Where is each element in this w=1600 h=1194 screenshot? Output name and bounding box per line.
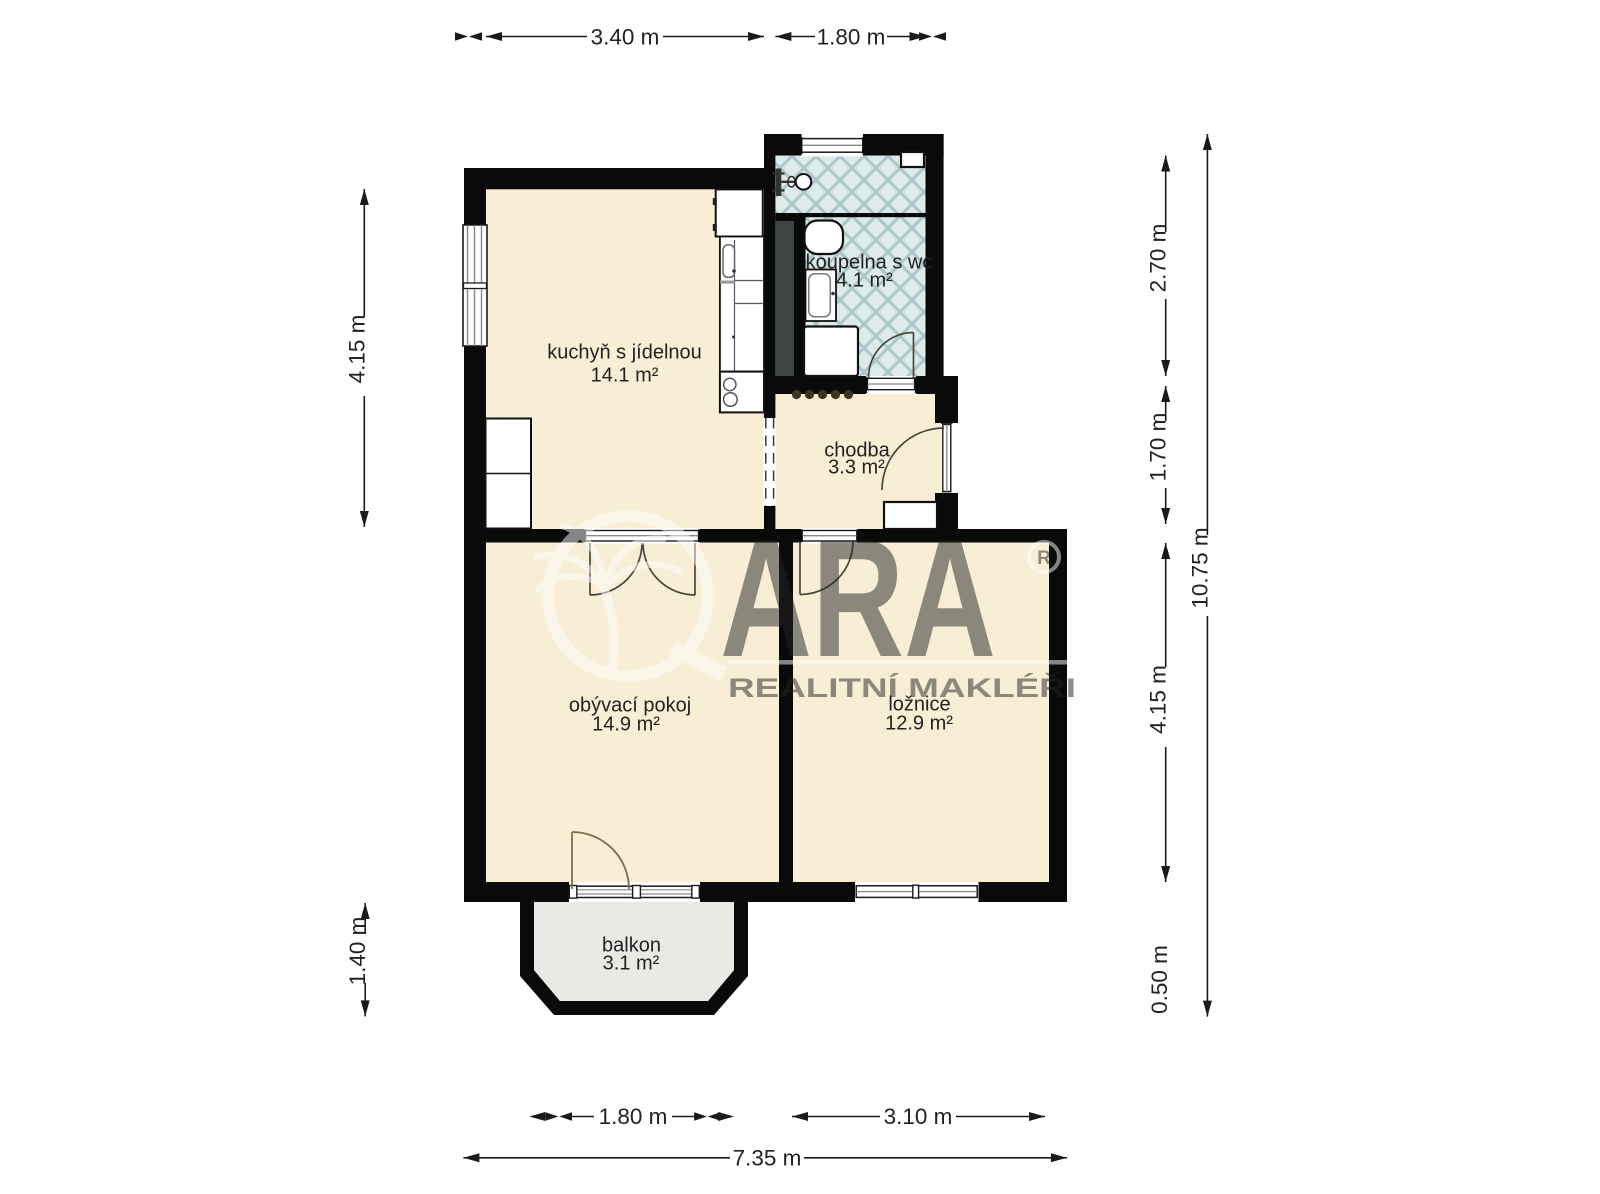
svg-text:R: R: [1037, 548, 1051, 569]
svg-text:3.10 m: 3.10 m: [884, 1104, 953, 1129]
svg-text:14.9 m²: 14.9 m²: [592, 714, 660, 736]
svg-text:1.80 m: 1.80 m: [599, 1104, 668, 1129]
svg-text:3.3 m²: 3.3 m²: [828, 457, 885, 479]
svg-text:7.35 m: 7.35 m: [733, 1145, 802, 1170]
svg-text:REALITNÍ MAKLÉŘI: REALITNÍ MAKLÉŘI: [728, 672, 1076, 703]
svg-text:1.80 m: 1.80 m: [817, 25, 886, 50]
svg-text:12.9 m²: 12.9 m²: [885, 713, 953, 735]
svg-text:4.15 m: 4.15 m: [1146, 665, 1171, 734]
svg-text:kuchyň s jídelnou: kuchyň s jídelnou: [547, 342, 702, 364]
svg-text:3.1 m²: 3.1 m²: [603, 953, 660, 975]
svg-text:14.1 m²: 14.1 m²: [591, 365, 659, 387]
svg-text:4.15 m: 4.15 m: [344, 315, 369, 384]
svg-text:2.70 m: 2.70 m: [1146, 224, 1171, 293]
svg-text:10.75 m: 10.75 m: [1187, 527, 1212, 608]
svg-text:1.70 m: 1.70 m: [1146, 413, 1171, 482]
svg-text:0.50 m: 0.50 m: [1147, 945, 1172, 1014]
svg-text:4.1 m²: 4.1 m²: [836, 270, 893, 292]
svg-text:1.40 m: 1.40 m: [345, 917, 370, 986]
svg-text:3.40 m: 3.40 m: [591, 25, 660, 50]
